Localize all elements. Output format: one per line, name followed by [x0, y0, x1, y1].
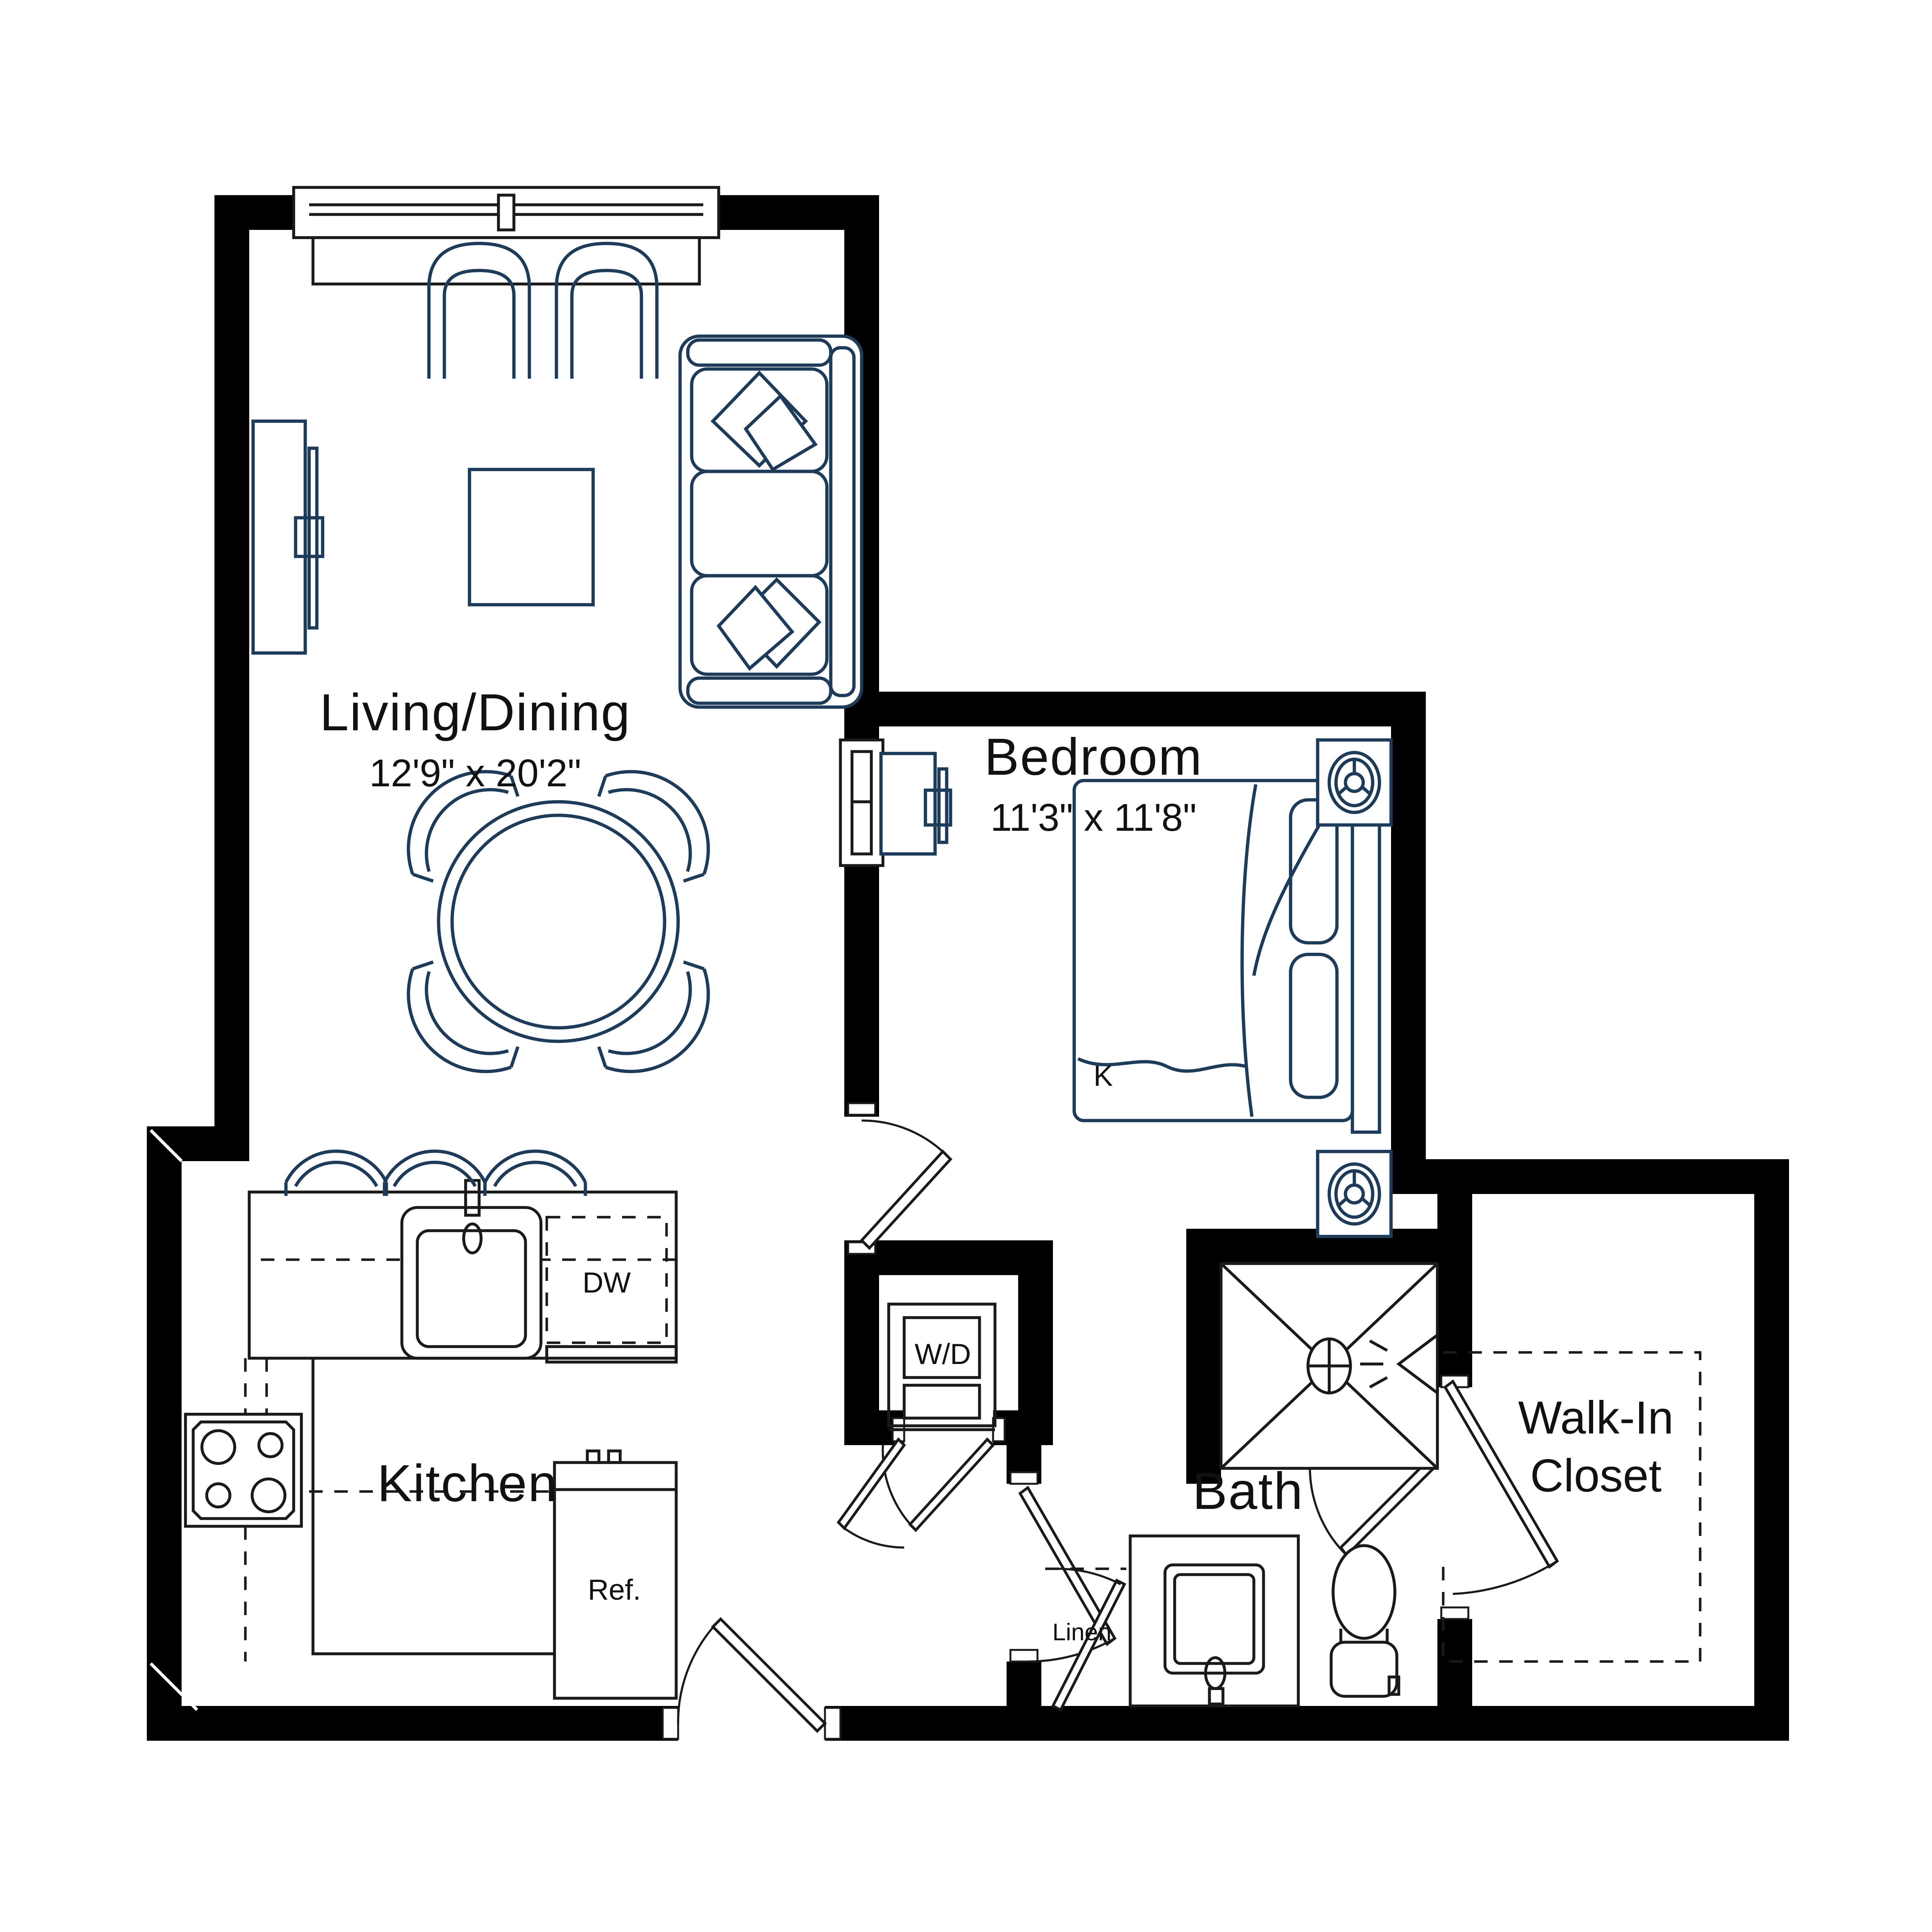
shower-door-swing [1310, 1468, 1347, 1555]
walk-in-closet-label-1: Walk-In [1518, 1392, 1673, 1444]
stove [185, 1358, 301, 1662]
wall-kitchen-left [147, 1126, 182, 1741]
floor-plan-svg: DW Ref. [0, 0, 1932, 1932]
wall-shower-left [1186, 1229, 1221, 1484]
wall-bedroom-right [1391, 692, 1426, 1194]
shower-door [1310, 1461, 1434, 1555]
bedroom-label: Bedroom [984, 728, 1202, 786]
bed-size-label: K [1094, 1060, 1113, 1092]
tv-bedroom [939, 769, 947, 842]
bedroom-dims: 11'3" x 11'8" [990, 796, 1197, 839]
wd-door-right-leaf [910, 1439, 993, 1530]
washer-dryer-label: W/D [915, 1338, 971, 1370]
linen-label: Linen [1053, 1619, 1112, 1646]
toilet-tank [1331, 1642, 1397, 1696]
divider-window [840, 740, 883, 866]
kitchen-label: Kitchen [377, 1454, 558, 1512]
wall-right-outer [1754, 1159, 1789, 1741]
dining-set [382, 745, 735, 1098]
entry-door [663, 1619, 840, 1739]
refrigerator: Ref. [554, 1451, 676, 1698]
sofa [680, 336, 862, 707]
bedroom-door [848, 1103, 951, 1254]
bar-stool [286, 1151, 386, 1196]
living-room-label: Living/Dining [320, 683, 631, 742]
walk-in-closet-label-2: Closet [1530, 1450, 1662, 1502]
dining-table [439, 802, 678, 1041]
bar-stool [485, 1151, 585, 1196]
bedroom-door-swing [862, 1121, 947, 1155]
living-room-furniture [253, 243, 862, 1098]
wall-shower-top [1186, 1229, 1437, 1264]
wall-closet-top [1391, 1159, 1789, 1194]
bar-stool [384, 1151, 485, 1196]
tv-living [309, 448, 317, 628]
tv-console-living [253, 421, 323, 653]
kitchen-sink [402, 1180, 541, 1358]
coffee-table [469, 469, 593, 605]
dishwasher-label: DW [583, 1266, 631, 1299]
toilet [1331, 1546, 1399, 1696]
bed-pillow [1291, 954, 1337, 1097]
wall-divider-mid [844, 866, 879, 1117]
kitchen-fixtures: DW Ref. [185, 1151, 676, 1698]
wall-bottom-right [825, 1706, 1789, 1741]
nightstand-bottom [1318, 1151, 1391, 1236]
shower [1221, 1264, 1437, 1468]
dresser-tv-bedroom [881, 753, 951, 854]
fridge-handle [587, 1451, 599, 1463]
wall-wd-top [879, 1240, 1053, 1275]
bedroom-door-leaf [862, 1151, 951, 1248]
vanity [1130, 1536, 1298, 1706]
wall-bath-closet-upper [1437, 1194, 1472, 1387]
floor-plan: DW Ref. [0, 0, 1932, 1932]
shower-door-leaf [1341, 1461, 1434, 1555]
bath-label: Bath [1192, 1462, 1304, 1520]
dishwasher: DW [547, 1217, 676, 1362]
linen-door-swing [1053, 1569, 1121, 1584]
living-room-dims: 12'9" x 20'2" [369, 752, 581, 795]
entry-door-leaf [713, 1619, 825, 1731]
entry-door-swing [678, 1619, 721, 1723]
wall-bath-closet-lower [1437, 1619, 1472, 1741]
wall-living-left [214, 195, 249, 1161]
wd-door-left-swing [844, 1528, 904, 1548]
wall-hall-stub-lower [1007, 1662, 1041, 1706]
nightstand-top [1318, 740, 1391, 825]
fridge-handle [609, 1451, 620, 1463]
wall-bottom-left [147, 1706, 678, 1741]
toilet-bowl [1333, 1546, 1395, 1638]
wall-bedroom-top [844, 692, 1426, 726]
closet-door-swing [1453, 1561, 1557, 1594]
wd-door-left-leaf [838, 1439, 904, 1528]
refrigerator-label: Ref. [588, 1573, 641, 1606]
